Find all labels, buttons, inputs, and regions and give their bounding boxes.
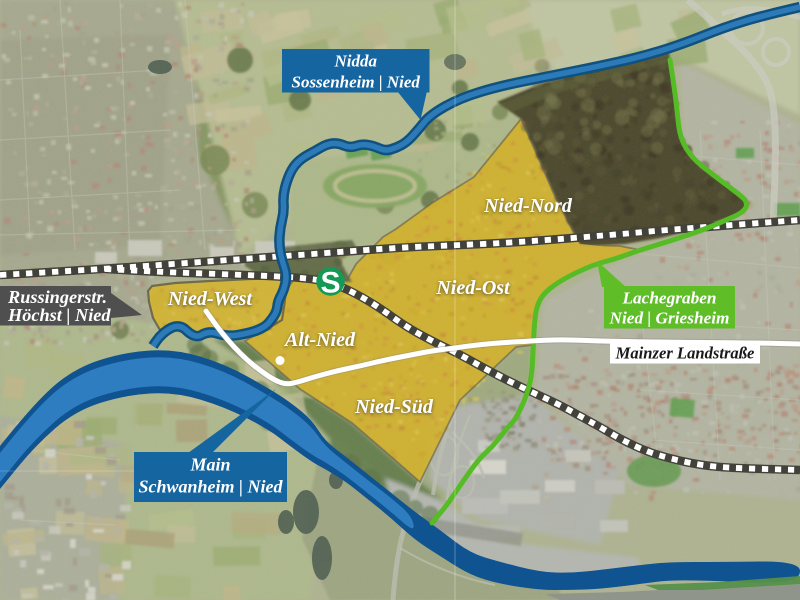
svg-text:Höchst | Nied: Höchst | Nied [7, 305, 111, 325]
svg-text:Nied | Griesheim: Nied | Griesheim [609, 309, 730, 328]
svg-text:Mainzer Landstraße: Mainzer Landstraße [615, 344, 755, 363]
svg-text:Nied-Nord: Nied-Nord [483, 195, 573, 217]
svg-text:Schwanheim | Nied: Schwanheim | Nied [139, 477, 284, 497]
svg-text:Russingerstr.: Russingerstr. [7, 287, 107, 307]
svg-text:Nied-Süd: Nied-Süd [354, 396, 434, 418]
svg-text:Nied-West: Nied-West [167, 288, 253, 310]
svg-text:Alt-Nied: Alt-Nied [283, 329, 356, 351]
svg-text:Lachegraben: Lachegraben [621, 289, 716, 308]
svg-text:S: S [320, 267, 340, 300]
svg-text:Nidda: Nidda [333, 52, 377, 71]
svg-text:Main: Main [189, 455, 230, 475]
svg-text:Nied-Ost: Nied-Ost [435, 277, 511, 299]
svg-text:Sossenheim | Nied: Sossenheim | Nied [291, 73, 420, 92]
